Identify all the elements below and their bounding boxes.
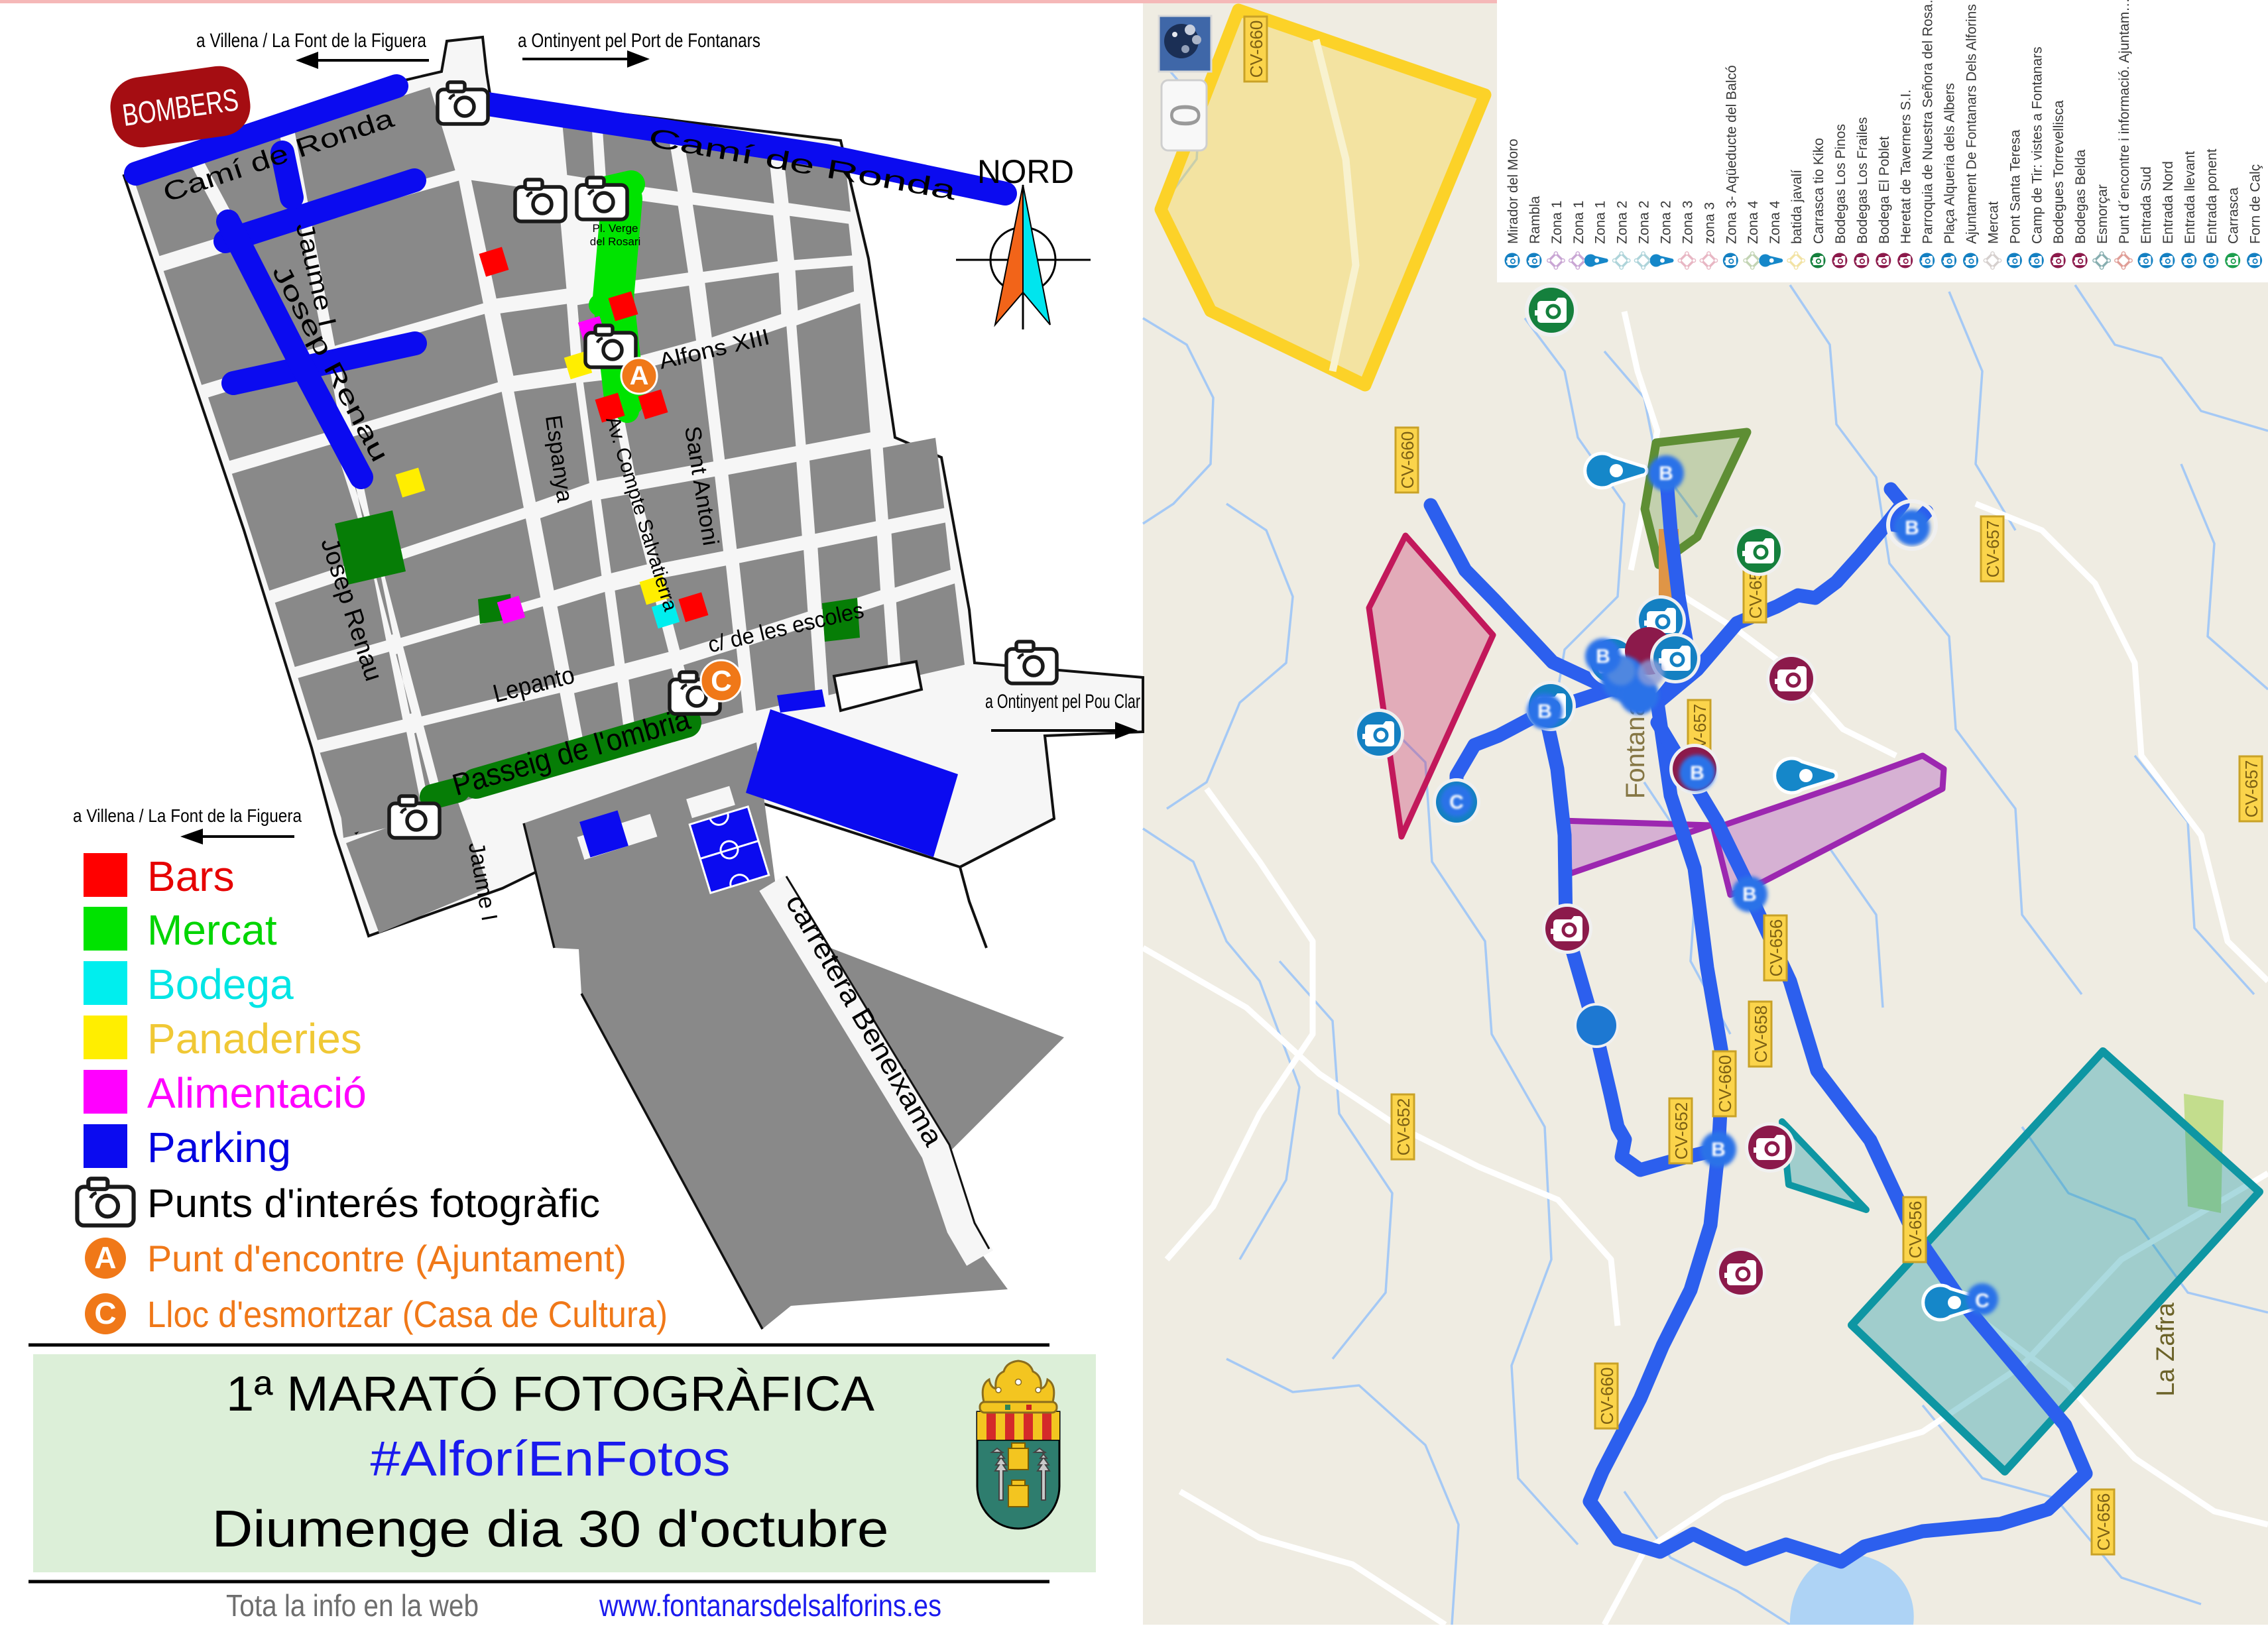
svg-text:CV-652: CV-652	[1671, 1102, 1691, 1160]
svg-text:Rambla: Rambla	[1527, 196, 1543, 244]
svg-text:CV-660: CV-660	[1597, 1367, 1617, 1425]
svg-text:CV-660: CV-660	[1398, 432, 1417, 489]
svg-text:batida javalí: batida javalí	[1789, 170, 1805, 244]
svg-text:Punt d'encontre (Ajuntament): Punt d'encontre (Ajuntament)	[147, 1238, 627, 1279]
svg-text:Mirador del Moro: Mirador del Moro	[1506, 139, 1521, 244]
svg-text:CV-657: CV-657	[2241, 760, 2261, 818]
svg-text:Zona 2: Zona 2	[1615, 201, 1630, 244]
svg-text:C: C	[94, 1296, 116, 1330]
svg-text:Entrada Sud: Entrada Sud	[2139, 166, 2154, 244]
svg-text:Bodegues Torrevellisca: Bodegues Torrevellisca	[2051, 100, 2066, 244]
svg-text:CV-657: CV-657	[1983, 520, 2003, 578]
svg-text:Heretat de Taverners S.I.: Heretat de Taverners S.I.	[1899, 89, 1914, 244]
svg-text:Bodega: Bodega	[147, 960, 294, 1008]
svg-text:Punt d´encontre i informació.: Punt d´encontre i informació. Ajuntam…	[2117, 0, 2132, 244]
svg-text:NORD: NORD	[977, 153, 1074, 190]
svg-text:Esmorçar: Esmorçar	[2095, 184, 2110, 244]
svg-text:CV-658: CV-658	[1751, 1006, 1771, 1063]
svg-text:a Villena / La Font de la Figu: a Villena / La Font de la Figuera	[73, 805, 302, 826]
svg-text:Parking: Parking	[147, 1124, 291, 1171]
svg-text:Zona 3: Zona 3	[1680, 201, 1695, 244]
svg-text:Forn de Calç: Forn de Calç	[2248, 164, 2263, 244]
svg-text:Diumenge dia 30 d'octubre: Diumenge dia 30 d'octubre	[212, 1499, 889, 1558]
svg-text:Plaça Alqueria dels Albers: Plaça Alqueria dels Albers	[1942, 83, 1958, 244]
svg-text:CV-660: CV-660	[1246, 21, 1266, 78]
svg-text:Carrasca: Carrasca	[2226, 187, 2241, 244]
svg-text:Lloc d'esmortzar (Casa de Cult: Lloc d'esmortzar (Casa de Cultura)	[147, 1293, 668, 1335]
svg-text:Mercat: Mercat	[1986, 202, 2001, 244]
svg-text:Bodega El Poblet: Bodega El Poblet	[1877, 137, 1892, 244]
svg-text:Ajuntament De Fontanars Dels A: Ajuntament De Fontanars Dels Alforins	[1964, 4, 1980, 244]
svg-text:Zona 1: Zona 1	[1549, 201, 1565, 244]
svg-text:CV-652: CV-652	[1394, 1098, 1413, 1156]
svg-text:a Villena / La Font de la Figu: a Villena / La Font de la Figuera	[196, 30, 426, 52]
svg-text:www.fontanarsdelsalforins.es: www.fontanarsdelsalforins.es	[599, 1588, 941, 1623]
svg-text:Alimentació: Alimentació	[147, 1069, 367, 1117]
svg-text:Parroquia de Nuestra Señora de: Parroquia de Nuestra Señora del Rosa…	[1921, 0, 1936, 244]
svg-text:Zona 1: Zona 1	[1571, 201, 1586, 244]
svg-text:Entrada Nord: Entrada Nord	[2161, 161, 2176, 244]
svg-text:Panaderies: Panaderies	[147, 1015, 362, 1063]
svg-text:Pl. Verge: Pl. Verge	[593, 222, 638, 235]
svg-text:Bodegas Los Frailes: Bodegas Los Frailes	[1855, 117, 1870, 244]
svg-text:Zona 2: Zona 2	[1659, 201, 1674, 244]
svg-text:A: A	[94, 1240, 116, 1275]
svg-text:Zona 1: Zona 1	[1593, 201, 1608, 244]
svg-text:CV-656: CV-656	[2094, 1493, 2114, 1551]
svg-text:Mercat: Mercat	[147, 906, 277, 954]
svg-text:1ª MARATÓ FOTOGRÀFICA: 1ª MARATÓ FOTOGRÀFICA	[226, 1366, 875, 1421]
svg-text:Camp de Tir: vistes a Fontanar: Camp de Tir: vistes a Fontanars	[2029, 46, 2045, 244]
svg-text:Zona 4: Zona 4	[1767, 200, 1783, 244]
svg-text:Bodegas Belda: Bodegas Belda	[2073, 149, 2088, 244]
svg-text:Entrada llevant: Entrada llevant	[2182, 151, 2198, 244]
svg-text:Pont Santa Teresa: Pont Santa Teresa	[2007, 129, 2023, 244]
svg-text:a Ontinyent pel Pou Clar: a Ontinyent pel Pou Clar	[985, 691, 1140, 713]
svg-text:Zona 4: Zona 4	[1746, 200, 1761, 244]
svg-text:#AlforíEnFotos: #AlforíEnFotos	[371, 1431, 731, 1486]
svg-text:C: C	[1449, 791, 1464, 813]
svg-text:Zona 3- Aqüeducte del Balcó: Zona 3- Aqüeducte del Balcó	[1724, 65, 1739, 244]
svg-text:A: A	[630, 361, 649, 390]
svg-text:C: C	[1975, 1290, 1990, 1312]
svg-text:zona 3: zona 3	[1702, 202, 1717, 244]
svg-text:La Zafra: La Zafra	[2152, 1302, 2180, 1396]
svg-text:Tota la info en la web: Tota la info en la web	[226, 1588, 479, 1623]
svg-text:Zona 2: Zona 2	[1637, 201, 1652, 244]
svg-text:CV-656: CV-656	[1766, 919, 1786, 977]
svg-text:del Rosari: del Rosari	[590, 235, 641, 248]
svg-text:CV-656: CV-656	[1905, 1201, 1925, 1259]
svg-text:CV-660: CV-660	[1715, 1055, 1735, 1113]
svg-text:0: 0	[1162, 103, 1209, 127]
svg-text:Bodegas Los Pinos: Bodegas Los Pinos	[1833, 124, 1848, 244]
svg-text:Bars: Bars	[147, 852, 235, 900]
svg-text:a Ontinyent pel Port de Fontan: a Ontinyent pel Port de Fontanars	[518, 30, 760, 52]
svg-text:Punts d'interés fotogràfic: Punts d'interés fotogràfic	[147, 1181, 600, 1226]
svg-text:Carrasca tio Kiko: Carrasca tio Kiko	[1811, 138, 1826, 244]
svg-text:C: C	[711, 665, 732, 697]
svg-text:Entrada ponent: Entrada ponent	[2204, 148, 2220, 244]
